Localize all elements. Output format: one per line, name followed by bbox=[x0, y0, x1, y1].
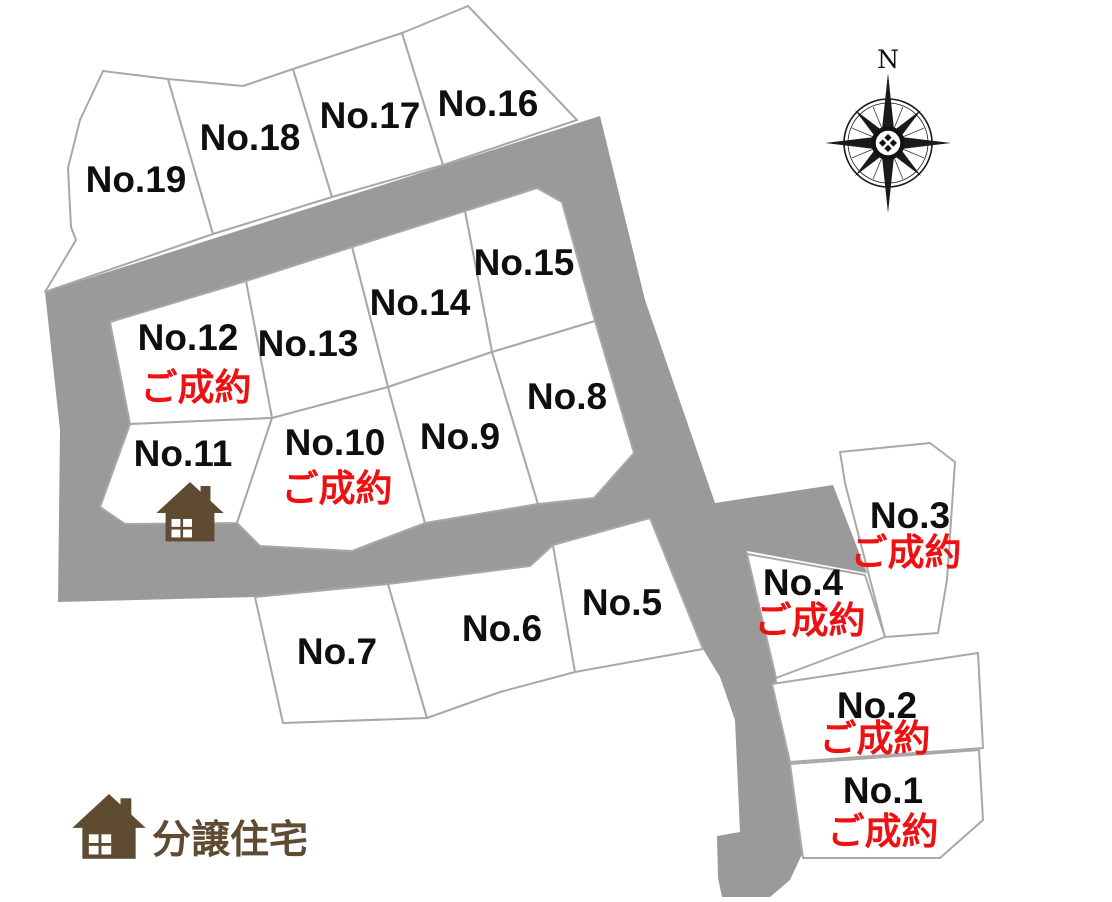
lot-label-no9: No.9 bbox=[420, 416, 500, 457]
compass-rose-icon: N bbox=[825, 45, 951, 213]
lot-label-no12: No.12 bbox=[138, 317, 239, 358]
lot-label-no10: No.10 bbox=[285, 422, 386, 463]
lot-status-no12: ご成約 bbox=[141, 367, 252, 408]
lot-label-no18: No.18 bbox=[200, 117, 301, 158]
house-icon-legend bbox=[72, 794, 145, 859]
lot-status-no3: ご成約 bbox=[851, 532, 962, 573]
lot-status-no10: ご成約 bbox=[282, 468, 393, 509]
lot-label-no14: No.14 bbox=[370, 282, 471, 323]
lot-label-no13: No.13 bbox=[258, 323, 359, 364]
lot-label-no6: No.6 bbox=[462, 608, 542, 649]
compass-north-label: N bbox=[877, 45, 899, 74]
lot-label-no1: No.1 bbox=[843, 770, 923, 811]
lot-label-no8: No.8 bbox=[527, 376, 607, 417]
site-map-svg: No.19 No.18 No.17 No.16 No.15 No.14 No.1… bbox=[0, 0, 1112, 902]
lot-label-no16: No.16 bbox=[438, 83, 539, 124]
legend-label: 分譲住宅 bbox=[152, 818, 308, 862]
lot-label-no4: No.4 bbox=[763, 562, 844, 603]
lot-label-no5: No.5 bbox=[582, 582, 662, 623]
site-plan: No.19 No.18 No.17 No.16 No.15 No.14 No.1… bbox=[0, 0, 1112, 902]
lot-label-no3: No.3 bbox=[870, 495, 950, 536]
lot-status-no4: ご成約 bbox=[755, 600, 866, 641]
lot-label-no15: No.15 bbox=[474, 242, 575, 283]
lot-label-no11: No.11 bbox=[134, 433, 233, 474]
lot-label-no17: No.17 bbox=[320, 95, 421, 136]
lot-label-no19: No.19 bbox=[86, 159, 187, 200]
legend: 分譲住宅 bbox=[72, 794, 308, 862]
lot-label-no7: No.7 bbox=[297, 631, 377, 672]
lot-status-no1: ご成約 bbox=[828, 811, 939, 852]
lot-status-no2: ご成約 bbox=[820, 718, 931, 759]
